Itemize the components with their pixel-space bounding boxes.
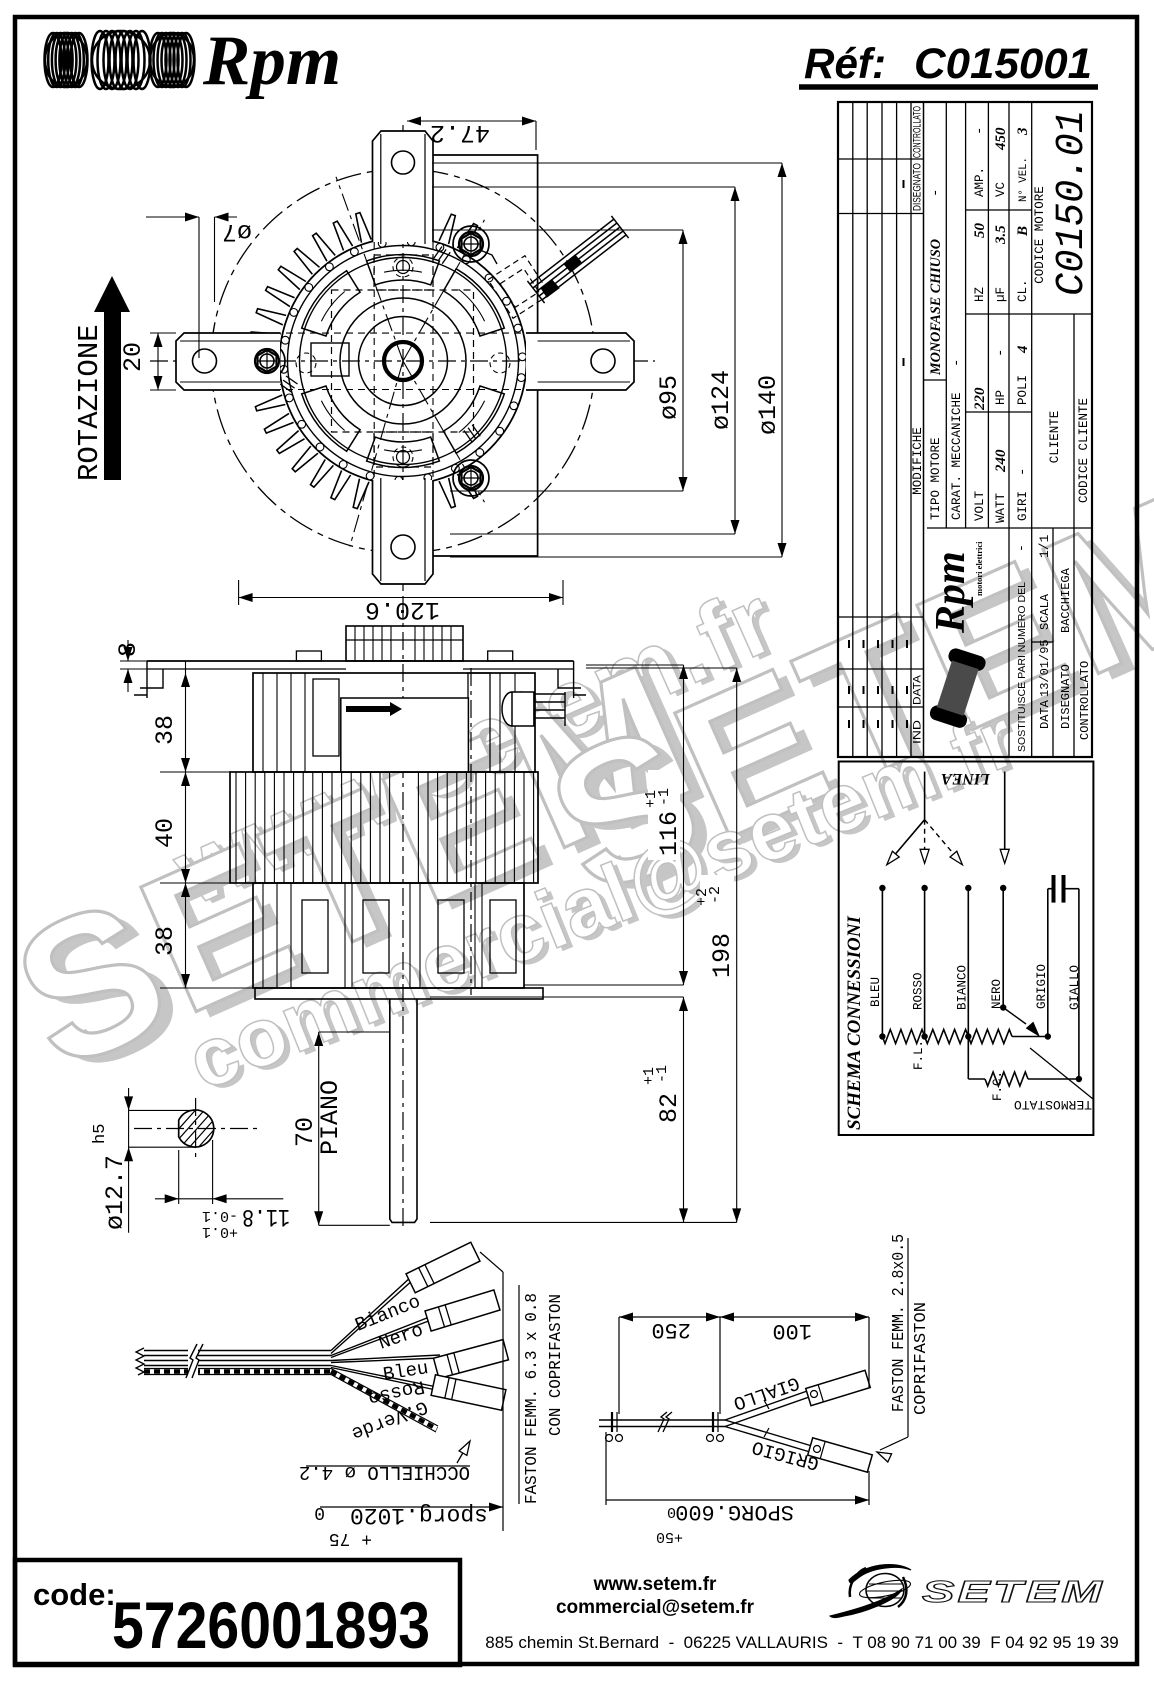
svg-text:CONTROLLATO: CONTROLLATO bbox=[1078, 661, 1092, 740]
svg-text:HP: HP bbox=[994, 390, 1008, 405]
svg-text:ø124: ø124 bbox=[707, 370, 736, 430]
svg-text:SCALA: SCALA bbox=[1038, 593, 1052, 630]
svg-text:4: 4 bbox=[1015, 345, 1031, 354]
svg-text:LINEA: LINEA bbox=[941, 770, 991, 787]
svg-text:ROTAZIONE: ROTAZIONE bbox=[73, 324, 106, 481]
svg-text:-2: -2 bbox=[707, 886, 724, 904]
svg-text:-1: -1 bbox=[654, 1065, 671, 1083]
svg-text:GIALLO: GIALLO bbox=[1068, 965, 1082, 1010]
svg-text:Rpm: Rpm bbox=[202, 22, 341, 100]
svg-text:40: 40 bbox=[151, 818, 180, 848]
svg-text:FASTON FEMM. 2.8x0.5: FASTON FEMM. 2.8x0.5 bbox=[890, 1234, 909, 1412]
svg-text:+50: +50 bbox=[656, 1528, 683, 1545]
svg-text:ø95: ø95 bbox=[655, 375, 684, 420]
svg-text:B: B bbox=[1015, 226, 1031, 237]
svg-text:8: 8 bbox=[114, 642, 143, 657]
svg-text:47.2: 47.2 bbox=[430, 118, 490, 147]
svg-text:GIRI: GIRI bbox=[1016, 491, 1030, 521]
svg-text:NERO: NERO bbox=[990, 979, 1004, 1009]
svg-text:VOLT: VOLT bbox=[973, 490, 987, 521]
svg-text:SCHEMA CONNESSIONI: SCHEMA CONNESSIONI bbox=[844, 916, 865, 1130]
svg-text:DISEGNATO: DISEGNATO bbox=[912, 163, 924, 211]
svg-text:µF: µF bbox=[994, 287, 1008, 302]
svg-text:HZ: HZ bbox=[973, 286, 987, 302]
svg-text:198: 198 bbox=[708, 933, 737, 978]
svg-text:885 chemin St.Bernard - 0622: 885 chemin St.Bernard - 06225 VALLAURIS … bbox=[485, 1633, 1119, 1652]
svg-text:commercial@setem.fr: commercial@setem.fr bbox=[556, 1597, 755, 1618]
svg-text:CODICE MOTORE: CODICE MOTORE bbox=[1033, 186, 1047, 284]
svg-text:250: 250 bbox=[651, 1317, 691, 1342]
svg-text:220: 220 bbox=[972, 387, 988, 411]
svg-text:MODIFICHE: MODIFICHE bbox=[911, 427, 925, 495]
svg-text:SPORG.600: SPORG.600 bbox=[675, 1499, 794, 1524]
svg-text:13/01/95: 13/01/95 bbox=[1038, 639, 1052, 697]
svg-text:38: 38 bbox=[151, 926, 180, 956]
svg-text:ROSSO: ROSSO bbox=[912, 972, 926, 1010]
svg-text:Rpm: Rpm bbox=[928, 551, 974, 634]
svg-text:code:: code: bbox=[33, 1577, 116, 1612]
svg-text:-: - bbox=[928, 189, 944, 197]
svg-text:CODICE CLIENTE: CODICE CLIENTE bbox=[1077, 398, 1091, 503]
svg-text:PIANO: PIANO bbox=[316, 1080, 345, 1155]
svg-text:82: 82 bbox=[655, 1093, 684, 1123]
svg-text:motori elettrici: motori elettrici bbox=[974, 541, 984, 596]
svg-text:ø12.7: ø12.7 bbox=[101, 1155, 130, 1230]
svg-text:-: - bbox=[972, 127, 988, 135]
svg-text:POLI: POLI bbox=[1016, 375, 1030, 405]
svg-text:C015001: C015001 bbox=[914, 40, 1092, 88]
svg-text:-0.1: -0.1 bbox=[202, 1207, 238, 1224]
svg-text:BACCHIEGA: BACCHIEGA bbox=[1059, 567, 1073, 633]
svg-text:DISEGNATO: DISEGNATO bbox=[1059, 664, 1073, 729]
svg-text:N° VEL.: N° VEL. bbox=[1018, 157, 1030, 202]
svg-text:CARAT. MECCANICHE: CARAT. MECCANICHE bbox=[950, 392, 964, 520]
svg-text:3.5: 3.5 bbox=[993, 225, 1009, 245]
svg-text:Réf:: Réf: bbox=[804, 40, 886, 88]
svg-text:50: 50 bbox=[972, 223, 988, 239]
svg-text:AMP.: AMP. bbox=[973, 167, 987, 197]
svg-text:450: 450 bbox=[993, 127, 1009, 151]
svg-text:-: - bbox=[1015, 468, 1031, 476]
svg-text:GRIGIO: GRIGIO bbox=[1035, 964, 1049, 1009]
svg-text:38: 38 bbox=[151, 715, 180, 745]
svg-text:116: 116 bbox=[655, 811, 684, 856]
svg-text:FASTON FEMM. 6.3 x 0.8: FASTON FEMM. 6.3 x 0.8 bbox=[523, 1293, 542, 1504]
svg-text:F.C.: F.C. bbox=[991, 1071, 1005, 1101]
svg-text:SETEM: SETEM bbox=[922, 1574, 1105, 1609]
svg-text:DATA: DATA bbox=[912, 674, 924, 705]
svg-text:CLIENTE: CLIENTE bbox=[1048, 411, 1062, 464]
svg-text:5726001893: 5726001893 bbox=[112, 1588, 430, 1662]
svg-text:WATT: WATT bbox=[994, 492, 1008, 523]
svg-text:OCCHIELLO ø 4.2: OCCHIELLO ø 4.2 bbox=[299, 1461, 470, 1483]
svg-text:TIPO MOTORE: TIPO MOTORE bbox=[929, 437, 943, 520]
svg-text:www.setem.fr: www.setem.fr bbox=[593, 1574, 717, 1595]
svg-text:-1: -1 bbox=[656, 788, 673, 806]
svg-text:CL.: CL. bbox=[1016, 279, 1030, 302]
svg-text:+0.1: +0.1 bbox=[202, 1223, 238, 1240]
svg-text:-: - bbox=[993, 349, 1009, 357]
svg-text:h5: h5 bbox=[91, 1124, 110, 1144]
svg-text:ø140: ø140 bbox=[754, 375, 783, 435]
svg-text:CONTROLLATO: CONTROLLATO bbox=[912, 106, 924, 158]
svg-text:C0150.01: C0150.01 bbox=[1050, 110, 1095, 296]
svg-text:MONOFASE CHIUSO: MONOFASE CHIUSO bbox=[928, 239, 944, 376]
svg-text:COPRIFASTON: COPRIFASTON bbox=[912, 1302, 931, 1415]
svg-text:1/1: 1/1 bbox=[1037, 534, 1052, 558]
svg-text:20: 20 bbox=[119, 342, 148, 372]
svg-text:240: 240 bbox=[993, 449, 1009, 473]
svg-text:CON COPRIFASTON: CON COPRIFASTON bbox=[547, 1294, 566, 1436]
svg-text:ø7: ø7 bbox=[222, 217, 252, 246]
svg-text:DATA: DATA bbox=[1038, 699, 1052, 729]
svg-text:TERMOSTATO: TERMOSTATO bbox=[1014, 1097, 1092, 1112]
svg-text:100: 100 bbox=[772, 1318, 812, 1343]
svg-text:-: - bbox=[949, 359, 965, 367]
svg-text:+ 75: + 75 bbox=[329, 1528, 372, 1548]
svg-text:-: - bbox=[1014, 544, 1029, 552]
svg-text:sporg.1020: sporg.1020 bbox=[350, 1502, 488, 1528]
svg-text:11.8: 11.8 bbox=[242, 1202, 290, 1231]
svg-text:IND: IND bbox=[912, 720, 924, 744]
svg-text:BLEU: BLEU bbox=[869, 977, 883, 1007]
svg-text:3: 3 bbox=[1015, 127, 1031, 136]
svg-text:VC: VC bbox=[994, 182, 1008, 197]
svg-text:BIANCO: BIANCO bbox=[956, 965, 970, 1010]
svg-text:SOSTITUISCE PARI NUMERO DEL: SOSTITUISCE PARI NUMERO DEL bbox=[1016, 582, 1028, 752]
svg-text:0: 0 bbox=[667, 1503, 676, 1520]
svg-text:0: 0 bbox=[314, 1502, 325, 1522]
svg-text:F.L.: F.L. bbox=[912, 1040, 926, 1070]
